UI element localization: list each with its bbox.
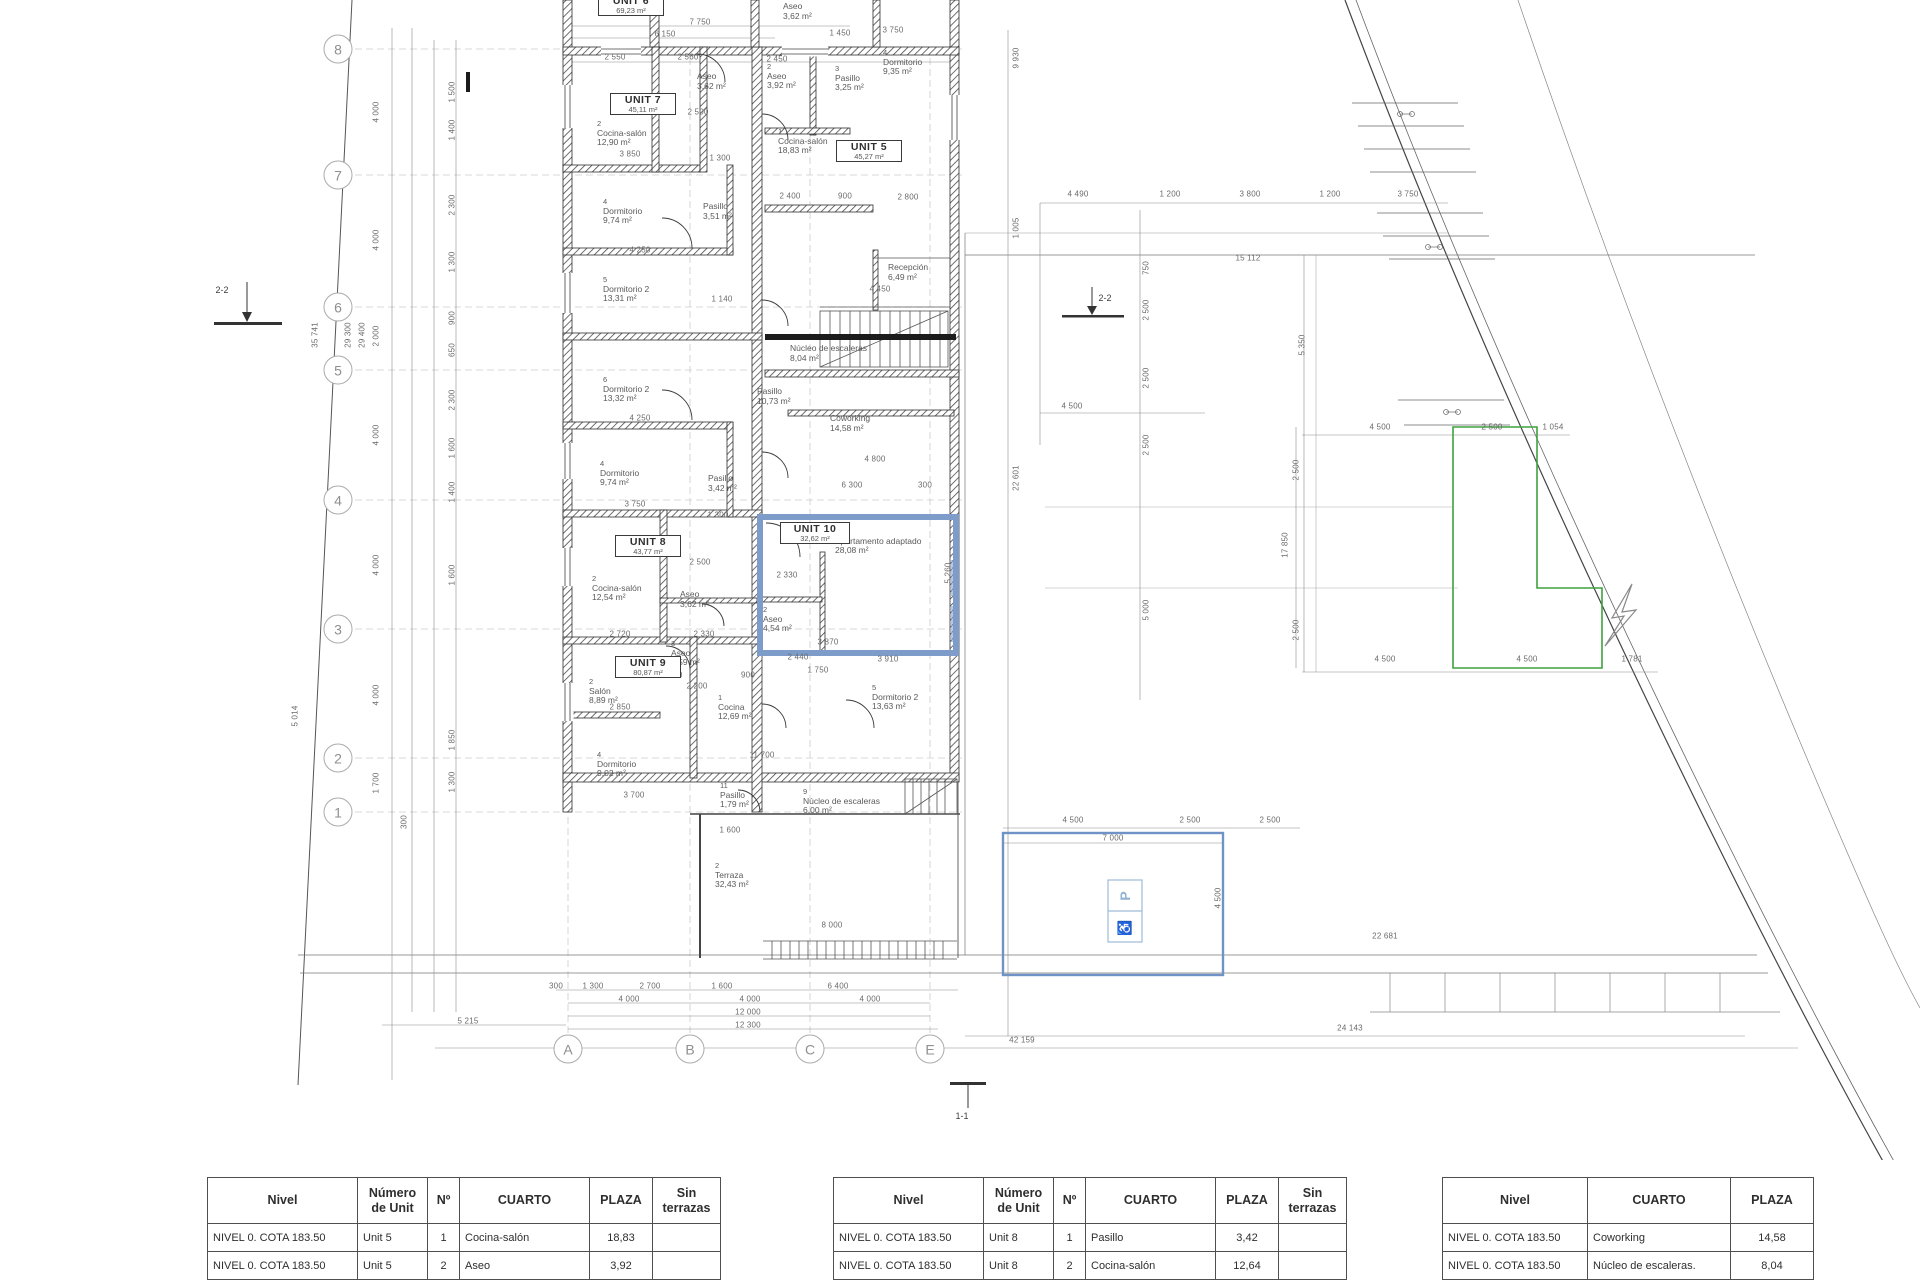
site-boundary [298,0,1920,1160]
table-cell: Unit 5 [358,1224,428,1252]
table-cell: 1 [1054,1224,1086,1252]
table-header: Número de Unit [358,1178,428,1224]
area-table-2: NivelNúmero de UnitNºCUARTOPLAZASin terr… [833,1177,1347,1280]
table-cell: Unit 8 [984,1224,1054,1252]
table-cell: 18,83 [590,1224,653,1252]
table-cell: Coworking [1588,1224,1731,1252]
table-header: Sin terrazas [1279,1178,1347,1224]
lightning-bolt-icon [1605,584,1636,646]
table-header: CUARTO [1588,1178,1731,1224]
table-cell: Cocina-salón [460,1224,590,1252]
area-table-3: NivelCUARTOPLAZANIVEL 0. COTA 183.50Cowo… [1442,1177,1814,1280]
table-cell [653,1252,721,1280]
table-cell: Cocina-salón [1086,1252,1216,1280]
table-cell: 8,04 [1731,1252,1814,1280]
unit10-highlight-outline [760,517,956,653]
table-row: NIVEL 0. COTA 183.50Unit 82Cocina-salón1… [834,1252,1347,1280]
table-cell: Aseo [460,1252,590,1280]
table-cell: 12,64 [1216,1252,1279,1280]
table-cell: 2 [428,1252,460,1280]
table-cell: 3,92 [590,1252,653,1280]
table-cell: NIVEL 0. COTA 183.50 [208,1252,358,1280]
bike-racks [1352,103,1510,425]
floor-plan-sheet: 7 7506 1502 5502 5602 4501 4503 7502 500… [0,0,1920,1280]
grid-lines [355,49,962,1040]
table-cell [1279,1224,1347,1252]
green-plot-outline [1453,427,1602,668]
table-header: Nivel [834,1178,984,1224]
table-cell: 1 [428,1224,460,1252]
table-header: CUARTO [1086,1178,1216,1224]
table-row: NIVEL 0. COTA 183.50Unit 51Cocina-salón1… [208,1224,721,1252]
walls [563,0,959,812]
table-header: PLAZA [1731,1178,1814,1224]
table-header: Número de Unit [984,1178,1054,1224]
table-row: NIVEL 0. COTA 183.50Núcleo de escaleras.… [1443,1252,1814,1280]
table-header: Nivel [1443,1178,1588,1224]
table-header: Nivel [208,1178,358,1224]
table-row: NIVEL 0. COTA 183.50Unit 52Aseo3,92 [208,1252,721,1280]
accessible-parking-outline [1003,833,1223,975]
table-cell: 2 [1054,1252,1086,1280]
table-cell: NIVEL 0. COTA 183.50 [208,1224,358,1252]
table-cell: Unit 5 [358,1252,428,1280]
table-cell: NIVEL 0. COTA 183.50 [1443,1224,1588,1252]
table-cell: NIVEL 0. COTA 183.50 [834,1252,984,1280]
table-cell: Unit 8 [984,1252,1054,1280]
table-cell: NIVEL 0. COTA 183.50 [834,1224,984,1252]
table-header: Sin terrazas [653,1178,721,1224]
table-row: NIVEL 0. COTA 183.50Unit 81Pasillo3,42 [834,1224,1347,1252]
table-header: Nº [428,1178,460,1224]
table-header: PLAZA [1216,1178,1279,1224]
floor-plan-linework [0,0,1920,1160]
table-header: PLAZA [590,1178,653,1224]
area-table-1: NivelNúmero de UnitNºCUARTOPLAZASin terr… [207,1177,721,1280]
stairs [763,311,957,959]
table-cell: NIVEL 0. COTA 183.50 [1443,1252,1588,1280]
table-cell: Núcleo de escaleras. [1588,1252,1731,1280]
table-row: NIVEL 0. COTA 183.50Coworking14,58 [1443,1224,1814,1252]
table-cell: Pasillo [1086,1224,1216,1252]
table-cell [653,1224,721,1252]
table-cell: 14,58 [1731,1224,1814,1252]
table-header: CUARTO [460,1178,590,1224]
table-header: Nº [1054,1178,1086,1224]
section-marker [214,282,1124,1108]
dimension-lines [382,26,1798,1080]
table-cell [1279,1252,1347,1280]
table-cell: 3,42 [1216,1224,1279,1252]
